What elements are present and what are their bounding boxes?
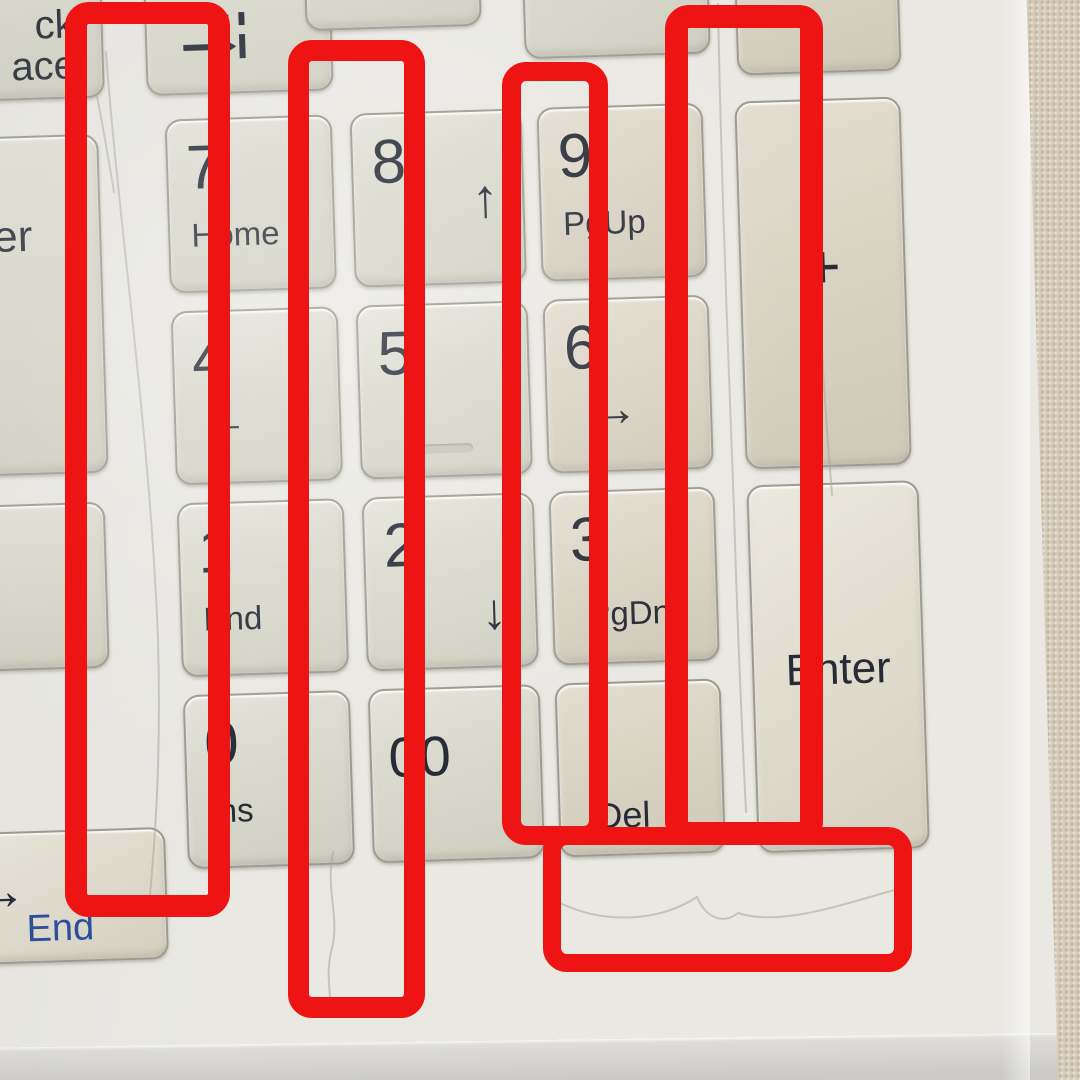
highlight-rect-5: [543, 827, 912, 972]
highlight-rect-2: [288, 40, 425, 1018]
highlight-rect-1: [65, 2, 230, 917]
highlight-rect-4: [665, 5, 823, 845]
highlight-rect-3: [502, 62, 608, 845]
annotation-overlay: [0, 0, 1080, 1080]
photo-laptop-numpad: 7Home8↑9PgUp+4←56→1End2↓3PgDnEnter0Ins00…: [0, 0, 1080, 1080]
